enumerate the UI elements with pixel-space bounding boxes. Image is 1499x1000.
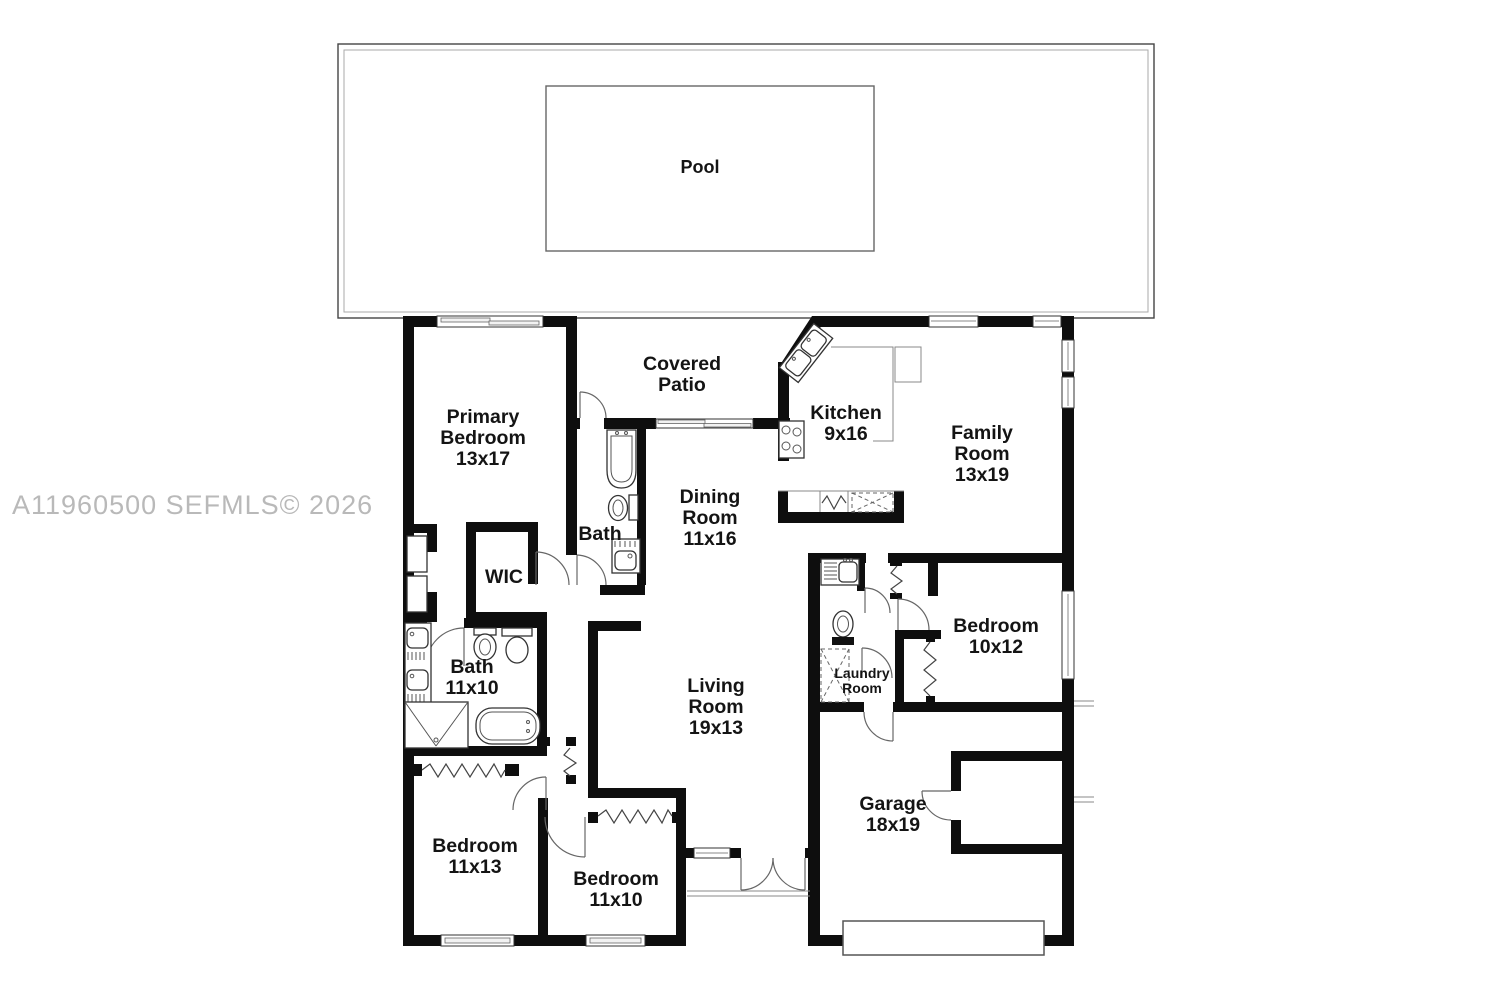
svg-text:Garage: Garage xyxy=(859,793,926,815)
side-stoop-lines xyxy=(1074,701,1094,802)
svg-text:Kitchen: Kitchen xyxy=(810,402,882,424)
svg-text:Bath: Bath xyxy=(450,656,493,678)
svg-text:Bedroom: Bedroom xyxy=(440,427,526,449)
bedroom-center-door-arc xyxy=(545,817,585,857)
bedroom-left-window xyxy=(441,935,514,946)
svg-text:Patio: Patio xyxy=(658,374,706,396)
svg-text:13x17: 13x17 xyxy=(456,448,510,470)
svg-text:19x13: 19x13 xyxy=(689,717,743,739)
laundry-sink xyxy=(821,559,859,586)
garage-door xyxy=(843,921,1044,955)
label-living-room: Living Room 19x13 xyxy=(687,675,744,739)
label-bedroom-left: Bedroom 11x13 xyxy=(432,835,518,878)
half-bath-toilet xyxy=(832,611,854,645)
svg-text:Room: Room xyxy=(682,507,737,529)
primary-bath-toilet xyxy=(502,628,532,663)
svg-text:Covered: Covered xyxy=(643,353,721,375)
primary-bath-shower xyxy=(405,702,468,748)
floor-plan-page: Pool Covered Patio Primary Bedroom 13x17… xyxy=(0,0,1499,1000)
entry-door-right-arc xyxy=(773,858,805,890)
bedroom-right-door-arc xyxy=(898,599,929,630)
svg-text:Bedroom: Bedroom xyxy=(573,868,659,890)
svg-text:10x12: 10x12 xyxy=(969,636,1023,658)
label-primary-bedroom: Primary Bedroom 13x17 xyxy=(440,406,526,470)
svg-text:18x19: 18x19 xyxy=(866,814,920,836)
kitchen-fridge xyxy=(895,347,921,382)
svg-text:11x10: 11x10 xyxy=(589,889,642,911)
svg-text:Room: Room xyxy=(688,696,743,718)
label-pool: Pool xyxy=(681,157,720,177)
svg-text:Bedroom: Bedroom xyxy=(953,615,1039,637)
pool-deck xyxy=(338,44,1154,318)
closet-bedroom-right-2 xyxy=(924,642,936,696)
svg-text:Room: Room xyxy=(954,443,1009,465)
svg-text:9x16: 9x16 xyxy=(824,423,868,445)
svg-text:11x16: 11x16 xyxy=(683,528,736,550)
family-room-top-window-2 xyxy=(1033,316,1061,327)
hall-bath-toilet xyxy=(609,495,639,521)
bedroom-right-window xyxy=(1062,591,1074,679)
primary-bath-vanity xyxy=(405,623,431,713)
porch-edge xyxy=(687,891,810,896)
label-dining-room: Dining Room 11x16 xyxy=(680,486,741,550)
mls-watermark: A11960500 SEFMLS© 2026 xyxy=(12,490,373,520)
hall-door-arc xyxy=(864,712,893,741)
svg-text:Primary: Primary xyxy=(447,406,520,428)
hall-bath-tub xyxy=(607,430,636,488)
svg-text:11x13: 11x13 xyxy=(448,856,501,878)
label-garage: Garage 18x19 xyxy=(859,793,926,836)
svg-text:Dining: Dining xyxy=(680,486,741,508)
family-room-top-window-1 xyxy=(929,316,978,327)
floor-plan-drawing: Pool Covered Patio Primary Bedroom 13x17… xyxy=(0,0,1499,1000)
patio-door-arc xyxy=(580,392,606,418)
label-hall-bath: Bath xyxy=(578,523,621,545)
svg-text:Laundry: Laundry xyxy=(834,665,889,681)
svg-text:Family: Family xyxy=(951,422,1013,444)
patio-slider-door xyxy=(656,419,753,428)
closet-bedroom-left xyxy=(422,764,505,777)
svg-text:Room: Room xyxy=(842,680,882,696)
pantry-interior xyxy=(778,491,904,512)
primary-bath-tub xyxy=(476,708,540,744)
label-kitchen: Kitchen 9x16 xyxy=(810,402,882,445)
label-wic: WIC xyxy=(485,566,523,588)
linen-closet xyxy=(564,748,576,776)
entry-window xyxy=(694,848,730,858)
wic-door-arc xyxy=(536,552,569,585)
label-family-room: Family Room 13x19 xyxy=(951,422,1013,486)
half-bath-door-arc xyxy=(865,588,890,613)
label-bedroom-center: Bedroom 11x10 xyxy=(573,868,659,911)
svg-text:Bedroom: Bedroom xyxy=(432,835,518,857)
hall-bath-door-arc xyxy=(577,555,606,585)
svg-text:Living: Living xyxy=(687,675,744,697)
entry-door-left-arc xyxy=(741,858,773,890)
bedroom-center-window xyxy=(586,935,645,946)
label-primary-bath: Bath 11x10 xyxy=(445,656,498,699)
label-bedroom-right: Bedroom 10x12 xyxy=(953,615,1039,658)
kitchen-stove xyxy=(779,421,804,458)
closet-bedroom-right-1 xyxy=(891,566,902,594)
svg-text:13x19: 13x19 xyxy=(955,464,1009,486)
primary-bedroom-window xyxy=(437,316,543,327)
label-covered-patio: Covered Patio xyxy=(643,353,721,396)
svg-text:11x10: 11x10 xyxy=(445,677,498,699)
label-laundry-room: Laundry Room xyxy=(834,665,889,696)
closet-bedroom-center xyxy=(598,810,672,823)
